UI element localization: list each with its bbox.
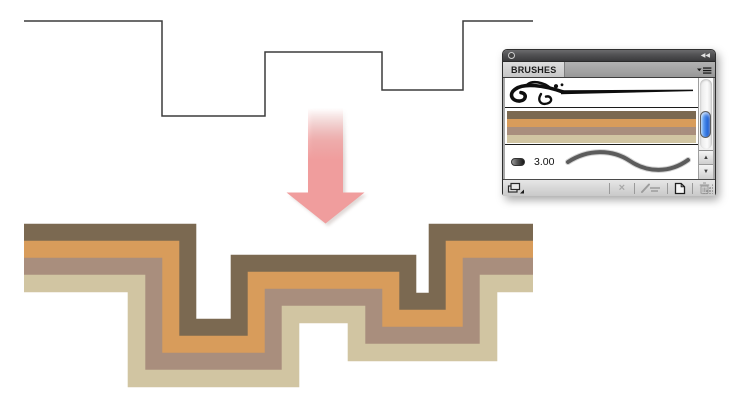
brush-item-floral-art[interactable]: [505, 78, 698, 108]
panel-titlebar[interactable]: ◀◀: [503, 50, 715, 62]
pattern-preview-stripe-0: [507, 111, 696, 119]
panel-tabbar: BRUSHES: [503, 62, 715, 78]
remove-brush-stroke-icon[interactable]: ×: [615, 183, 629, 194]
calligraphic-tip-icon: [511, 158, 525, 166]
toolbar-divider: [692, 183, 693, 194]
floral-art-brush-preview: [505, 78, 698, 108]
panel-menu-icon: [697, 66, 712, 75]
collapse-to-icons-icon[interactable]: ◀◀: [701, 51, 710, 61]
brushes-panel: ◀◀ BRUSHES: [502, 49, 716, 196]
toolbar-divider: [667, 183, 668, 194]
pattern-preview-stripe-3: [507, 135, 696, 143]
toolbar-divider: [634, 183, 635, 194]
brush-item-stripes-pattern[interactable]: [505, 108, 698, 145]
toolbar-divider: [609, 183, 610, 194]
brush-options-icon[interactable]: [640, 182, 662, 194]
brush-libraries-menu-icon[interactable]: [507, 182, 525, 195]
brush-list: 3.00 ▲ ▼: [503, 78, 715, 179]
scrollbar-buttons: ▲ ▼: [699, 150, 713, 179]
scrollbar[interactable]: ▲ ▼: [698, 78, 713, 179]
scrollbar-thumb[interactable]: [700, 111, 711, 138]
new-brush-icon[interactable]: [673, 182, 687, 195]
pattern-preview-stripe-2: [507, 127, 696, 135]
tab-brushes[interactable]: BRUSHES: [503, 62, 565, 77]
brush-item-calligraphic[interactable]: 3.00: [505, 145, 698, 178]
panel-title: BRUSHES: [511, 65, 556, 75]
close-icon[interactable]: [508, 52, 515, 59]
panel-toolbar: ×: [503, 179, 715, 196]
illustrator-artboard: ◀◀ BRUSHES: [0, 0, 738, 400]
scroll-down-button[interactable]: ▼: [699, 165, 713, 179]
source-path[interactable]: [24, 21, 533, 116]
panel-menu-button[interactable]: [696, 65, 712, 75]
pattern-stroke-result[interactable]: [24, 233, 533, 379]
scroll-up-button[interactable]: ▲: [699, 151, 713, 165]
calligraphic-stroke-preview: [564, 147, 692, 177]
pattern-preview-stripe-1: [507, 119, 696, 127]
calligraphic-size-label: 3.00: [534, 156, 554, 168]
